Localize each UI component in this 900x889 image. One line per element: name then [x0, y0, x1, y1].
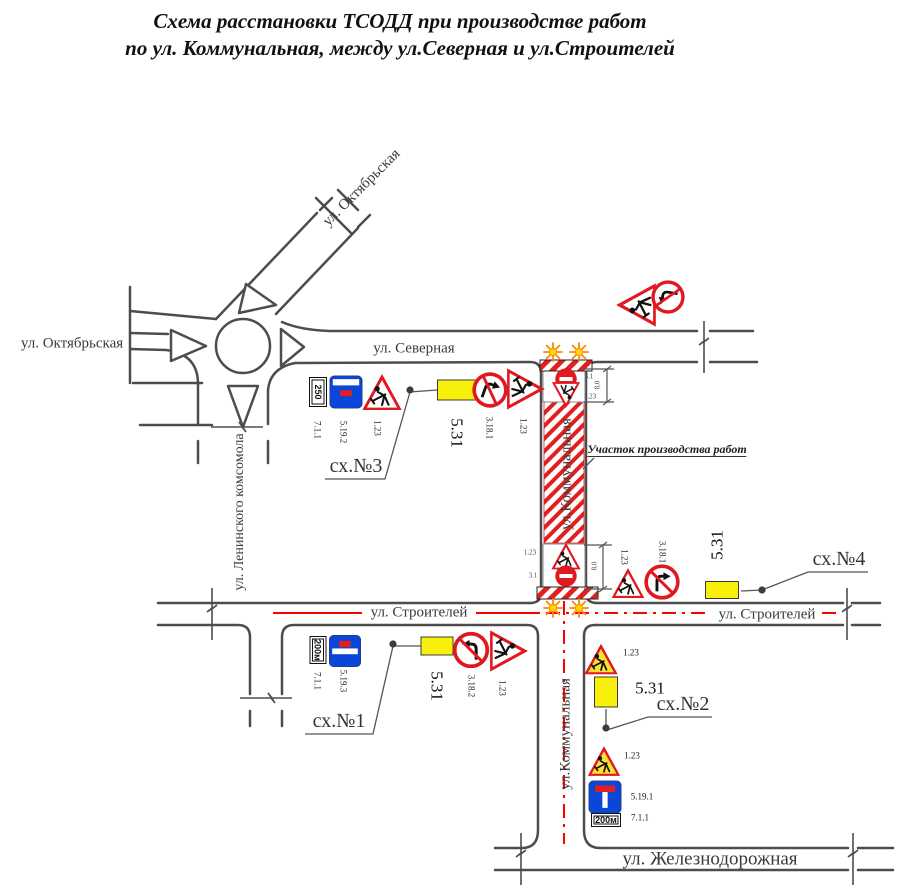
sign-number-label: 1.23 [519, 418, 528, 434]
sign-number-label: 1.23 [620, 549, 629, 565]
street-label-kommunalnaya-south: ул.Коммунальная [559, 678, 574, 790]
title-line-2: по ул. Коммунальная, между ул.Северная и… [70, 35, 730, 62]
sign-number-label: 5.31 [449, 418, 466, 448]
sign-5-31-detour [421, 637, 454, 656]
work-zone-label: Участок производства работ [587, 443, 746, 457]
street-label-zheleznodorozhnaya: ул. Железнодорожная [622, 850, 797, 869]
sign-number-label: 5.31 [429, 671, 446, 701]
barrier-north [540, 343, 592, 371]
sign-5-31-detour [594, 677, 618, 708]
sign-number-label: 3.18.1 [485, 417, 494, 440]
street-label-oktyabrskaya-west: ул. Октябрьская [21, 337, 123, 352]
page-title: Схема расстановки ТСОДД при производстве… [70, 8, 730, 63]
sign-1-23-roadworks [611, 567, 645, 599]
sign-5-31-detour [705, 581, 739, 599]
sign-1-23-roadworks [587, 746, 622, 777]
sign-5-19-2-dead-end [330, 376, 363, 409]
sign-number-label: 1.23 [498, 680, 507, 696]
sign-1-23-roadworks [506, 368, 546, 411]
street-label-stroiteley-east: ул. Строителей [716, 608, 819, 623]
sign-number-label: 1.23 [624, 752, 640, 761]
sign-5-19-1-dead-end [588, 781, 622, 814]
sign-number-label: 1.23 [373, 420, 382, 436]
sign-number-label: 7.1.1 [313, 421, 322, 439]
sign-number-label: 3.18.1 [658, 541, 667, 564]
sign-number-label: 5.19.3 [339, 670, 348, 693]
sign-number-label: 5.19.1 [631, 793, 654, 802]
scheme-ref-3: сх.№3 [330, 456, 383, 476]
sign-number-label: 1.23 [584, 394, 596, 401]
sign-number-label: 5.19.2 [339, 421, 348, 444]
sign-3-18-1-no-right-turn [644, 564, 680, 600]
sign-number-label: 7.1.1 [313, 672, 322, 690]
sign-number-label: 5.31 [709, 530, 726, 560]
sign-number-label: 3.1 [585, 374, 594, 381]
sign-number-label: 8,0 [595, 381, 602, 390]
sign-3-18-2-no-left-turn [648, 277, 687, 316]
plate-7-1-1-200m: 200м [591, 813, 621, 827]
street-label-stroiteley-west: ул. Строителей [368, 606, 471, 621]
sign-number-label: 1.23 [623, 649, 639, 658]
street-label-severnaya: ул. Северная [373, 342, 454, 357]
sign-number-label: 3.18.2 [467, 675, 476, 698]
sign-1-23-roadworks [583, 643, 619, 675]
sign-number-label: 8,0 [592, 562, 599, 571]
plate-7-1-1-250: 250 [309, 377, 327, 407]
scheme-ref-1: сх.№1 [313, 711, 366, 731]
sign-number-label: 5.31 [635, 680, 665, 697]
sign-number-label: 1.23 [524, 550, 536, 557]
scheme-ref-4: сх.№4 [813, 549, 866, 569]
sign-3-18-2-no-left-turn [453, 632, 490, 669]
sign-number-label: 7.1.1 [631, 814, 649, 823]
sign-1-23-roadworks [489, 630, 530, 673]
sign-3-1-no-entry [555, 565, 577, 587]
sign-1-23-roadworks [551, 382, 581, 409]
street-label-kommunalnaya-north: ул.Коммунальная [560, 418, 575, 530]
title-line-1: Схема расстановки ТСОДД при производстве… [70, 8, 730, 35]
sign-1-23-roadworks [362, 373, 403, 411]
plate-7-1-1-200m: 200м [310, 636, 327, 664]
sign-number-label: 3.1 [529, 573, 538, 580]
sign-5-19-3-dead-end [329, 635, 361, 667]
traffic-scheme-diagram: Схема расстановки ТСОДД при производстве… [0, 0, 900, 889]
street-label-leninskogo-komsomola: ул. Ленинского комсомола [233, 433, 247, 590]
